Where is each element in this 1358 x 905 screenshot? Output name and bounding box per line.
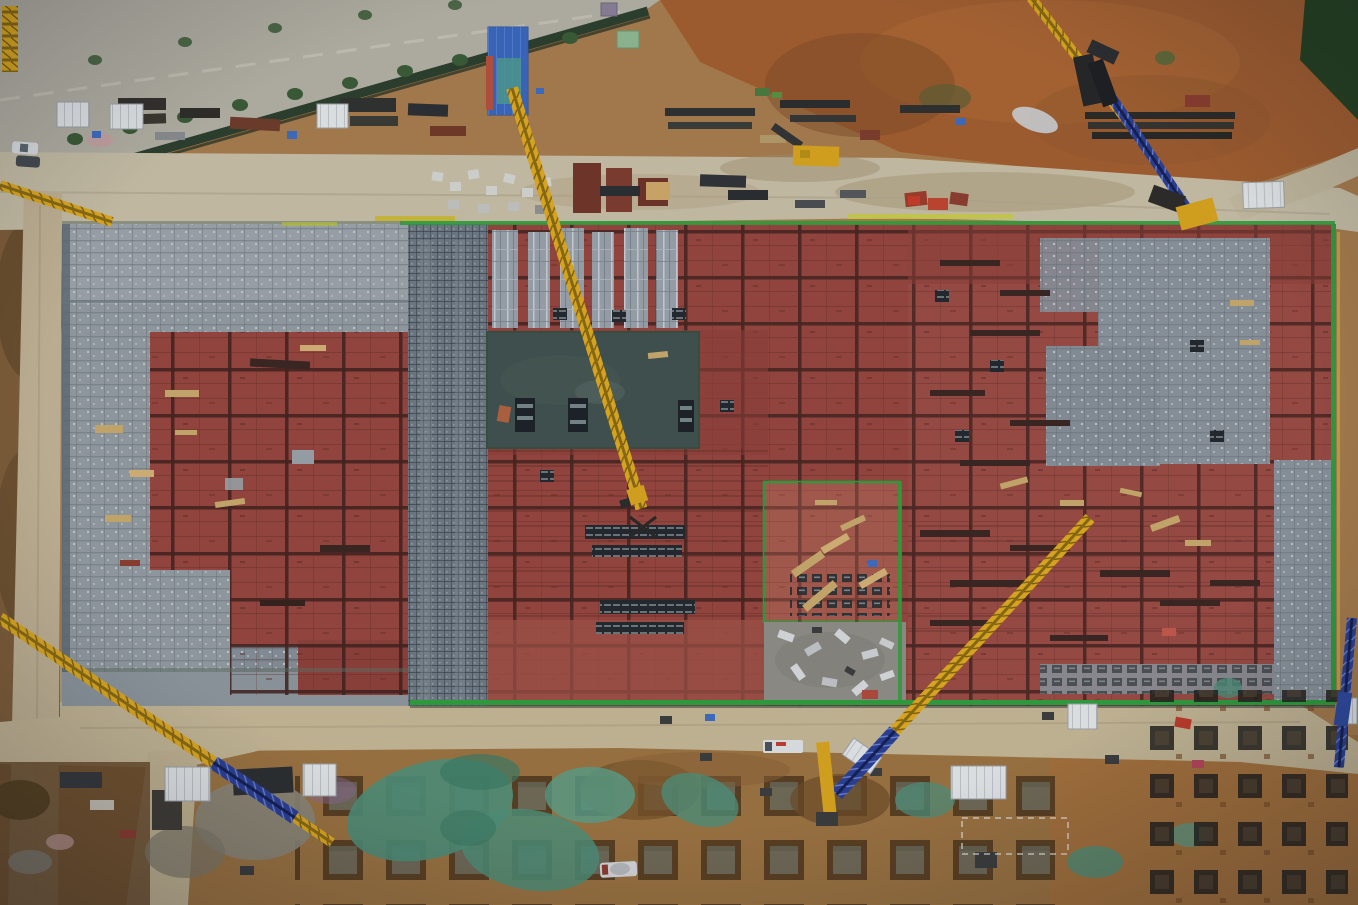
aerial-construction-photo (0, 0, 1358, 905)
vignette (0, 0, 1358, 905)
